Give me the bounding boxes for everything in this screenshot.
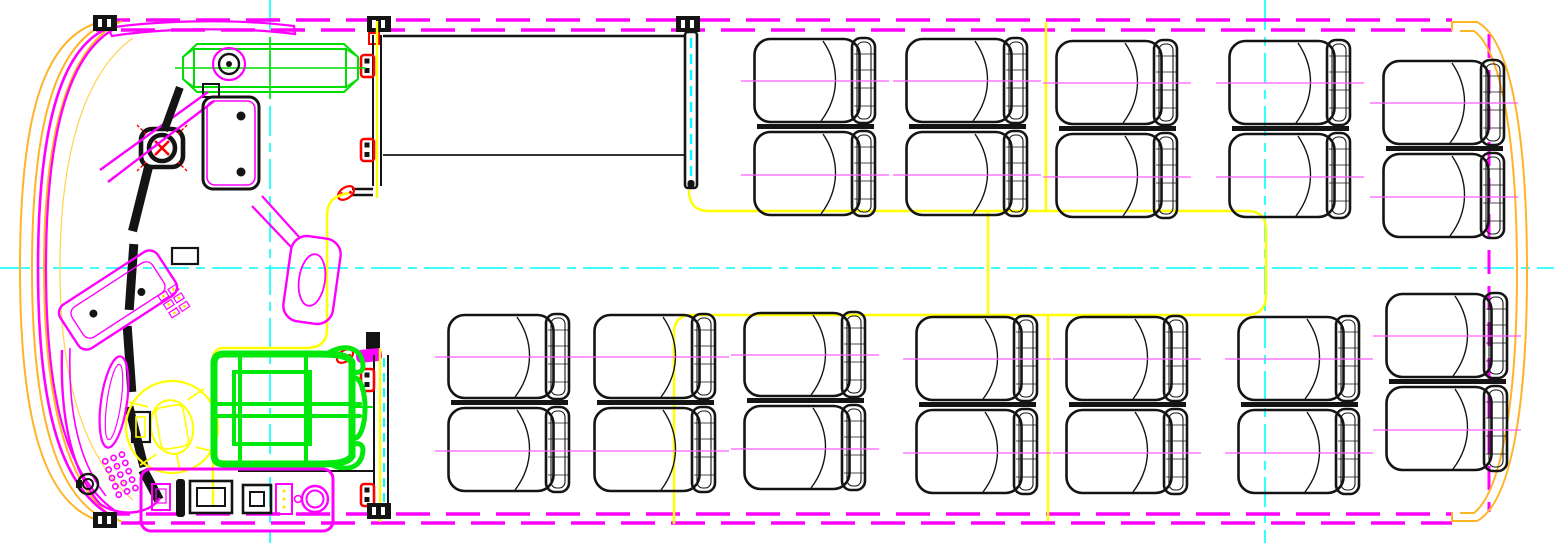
- seat-pair-bottom: [1053, 316, 1201, 494]
- side-vent: [172, 248, 198, 264]
- seat-pair-bottom: [903, 316, 1051, 494]
- driver-seat: [214, 348, 372, 468]
- seat-pair-bottom: [435, 314, 583, 492]
- seat-pair-bottom-rear: [1373, 293, 1521, 471]
- front-equipment-panel: [203, 97, 259, 189]
- passenger-seats: [435, 38, 1521, 494]
- front-post-top-bracket: [367, 16, 391, 32]
- mid-door-end-cap: [688, 180, 695, 188]
- seat-pair-bottom: [581, 314, 729, 492]
- console-switch-box: [243, 485, 271, 513]
- rear-post-bottom-bracket: [367, 503, 391, 519]
- seat-pair-bottom: [731, 312, 879, 490]
- seat-pair-top: [1216, 40, 1364, 218]
- seat-pair-top: [893, 38, 1041, 216]
- gangway-boundary: [674, 190, 1266, 524]
- seat-pair-top: [741, 38, 889, 216]
- mid-door-top-bracket: [676, 16, 700, 32]
- pedal-cluster: [102, 451, 139, 498]
- door-step-partition: [383, 36, 685, 155]
- roof-hatch-fan: [137, 125, 187, 171]
- bus-floorplan-screenshot: CAD top-view floor plan of a midibus int…: [0, 0, 1554, 543]
- rear-post-top-bracket: [366, 332, 380, 349]
- seat-pair-bottom: [1225, 316, 1373, 494]
- mid-door: [676, 16, 700, 188]
- console-lever: [176, 479, 185, 517]
- seat-pair-top: [1043, 40, 1191, 218]
- seat-pair-top-rear: [1370, 60, 1518, 238]
- bus-floorplan-canvas: CAD top-view floor plan of a midibus int…: [0, 0, 1554, 543]
- door-hinge-bracket: [361, 484, 374, 506]
